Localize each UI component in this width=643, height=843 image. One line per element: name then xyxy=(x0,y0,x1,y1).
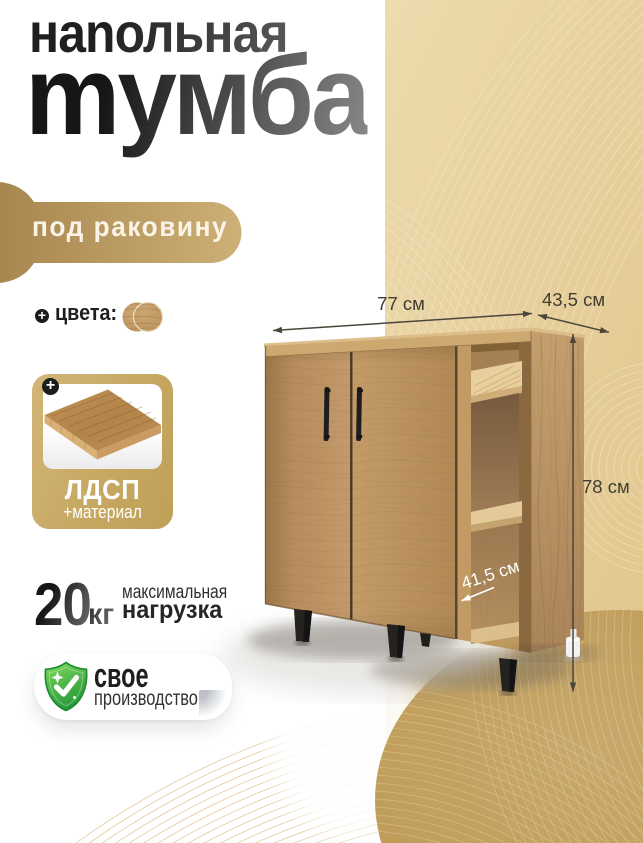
svg-text:78 см: 78 см xyxy=(582,476,630,497)
svg-text:77 см: 77 см xyxy=(377,293,425,314)
svg-text:43,5 см: 43,5 см xyxy=(542,289,605,310)
